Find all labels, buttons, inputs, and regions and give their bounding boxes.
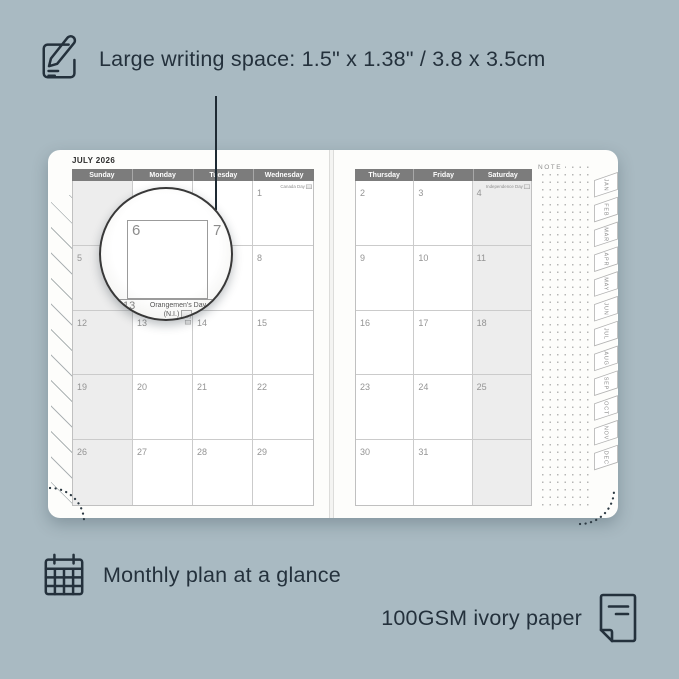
calendar-cell-14: 14: [193, 311, 253, 376]
month-tab-label-sep: SEP: [603, 377, 609, 390]
date-number: 2: [360, 188, 365, 198]
calendar-cell-24: 24: [414, 375, 472, 440]
calendar-cell-21: 21: [193, 375, 253, 440]
date-number: 4: [477, 188, 482, 198]
date-number: 28: [197, 447, 207, 457]
date-number: 23: [360, 382, 370, 392]
calendar-cell-2: 2: [356, 181, 414, 246]
date-number: 31: [418, 447, 428, 457]
month-tab-label-aug: AUG: [603, 351, 609, 365]
calendar-cell-17: 17: [414, 311, 472, 376]
calendar-cell-4: 4Independence Day: [473, 181, 531, 246]
feature-callout-paper: 100GSM ivory paper: [381, 592, 639, 644]
note-label: NOTE: [538, 164, 565, 171]
calendar-cell-3: 3: [414, 181, 472, 246]
month-tab-label-apr: APR: [603, 253, 609, 267]
calendar-cell-12: 12: [73, 311, 133, 376]
magnified-holiday-label: Orangemen's Day (N.I.): [138, 301, 218, 319]
magnified-date-13: 13: [123, 300, 135, 312]
calendar-cell-25: 25: [473, 375, 531, 440]
month-tab-label-mar: MAR: [603, 227, 609, 242]
corner-stitch-left: [44, 486, 88, 530]
right-page-day-headers: ThursdayFridaySaturday: [355, 169, 532, 181]
date-number: 17: [418, 318, 428, 328]
callout-line: [215, 96, 217, 210]
corner-stitch-right: [576, 486, 620, 530]
page-gutter: [328, 150, 335, 518]
holiday-label: Independence Day: [479, 184, 530, 190]
paper-sheet-icon: [597, 592, 639, 644]
date-number: 5: [77, 253, 82, 263]
holiday-label: Canada Day: [261, 184, 312, 190]
date-number: 14: [197, 318, 207, 328]
monthly-plan-label: Monthly plan at a glance: [103, 563, 341, 588]
note-column: NOTE: [537, 164, 594, 511]
cut-tab-hatch-edge: [51, 195, 72, 507]
date-number: 22: [257, 382, 267, 392]
date-number: 1: [257, 188, 262, 198]
date-number: 11: [477, 253, 486, 263]
calendar-cell-16: 16: [356, 311, 414, 376]
calendar-cell-11: 11: [473, 246, 531, 311]
day-header-monday: Monday: [133, 169, 194, 181]
day-header-friday: Friday: [414, 169, 473, 181]
writing-space-label: Large writing space: 1.5" x 1.38" / 3.8 …: [99, 47, 546, 72]
paper-label: 100GSM ivory paper: [381, 606, 582, 631]
month-tab-label-feb: FEB: [603, 203, 609, 216]
calendar-cell-9: 9: [356, 246, 414, 311]
flag-icon: [185, 320, 191, 324]
date-number: 10: [418, 253, 428, 263]
calendar-cell-22: 22: [253, 375, 313, 440]
calendar-cell-8: 8: [253, 246, 313, 311]
month-tab-label-oct: OCT: [603, 401, 609, 415]
month-tab-label-jul: JUL: [603, 328, 609, 340]
right-page-calendar-grid: 234Independence Day910111617182324253031: [355, 181, 532, 506]
month-tab-label-may: MAY: [603, 277, 609, 291]
calendar-cell-empty: [473, 440, 531, 505]
date-number: 27: [137, 447, 147, 457]
date-number: 30: [360, 447, 370, 457]
left-page-day-headers: SundayMondayTuesdayWednesday: [72, 169, 314, 181]
calendar-cell-18: 18: [473, 311, 531, 376]
calendar-cell-1: 1Canada Day: [253, 181, 313, 246]
date-number: 21: [197, 382, 207, 392]
calendar-cell-15: 15: [253, 311, 313, 376]
date-number: 9: [360, 253, 365, 263]
feature-callout-writing-space: Large writing space: 1.5" x 1.38" / 3.8 …: [38, 34, 546, 84]
date-number: 3: [418, 188, 423, 198]
feature-callout-monthly-plan: Monthly plan at a glance: [40, 552, 341, 598]
day-header-sunday: Sunday: [72, 169, 133, 181]
date-number: 15: [257, 318, 267, 328]
date-number: 26: [77, 447, 87, 457]
calendar-cell-30: 30: [356, 440, 414, 505]
month-tab-label-jun: JUN: [603, 302, 609, 315]
calendar-cell-23: 23: [356, 375, 414, 440]
product-feature-image: Large writing space: 1.5" x 1.38" / 3.8 …: [0, 0, 679, 679]
flag-icon: [181, 310, 192, 318]
pencil-note-icon: [38, 34, 84, 84]
day-header-wednesday: Wednesday: [254, 169, 314, 181]
month-tabs: JANFEBMARAPRMAYJUNJULAUGSEPOCTNOVDEC: [594, 172, 618, 472]
magnified-date-7: 7: [213, 222, 221, 239]
flag-icon: [524, 184, 530, 188]
day-header-thursday: Thursday: [355, 169, 414, 181]
date-number: 29: [257, 447, 267, 457]
calendar-cell-20: 20: [133, 375, 193, 440]
magnified-date-6: 6: [132, 222, 140, 239]
day-header-saturday: Saturday: [474, 169, 532, 181]
month-tab-label-dec: DEC: [603, 451, 609, 465]
date-number: 19: [77, 382, 87, 392]
flag-icon: [306, 184, 312, 188]
calendar-cell-29: 29: [253, 440, 313, 505]
calendar-cell-31: 31: [414, 440, 472, 505]
date-number: 25: [477, 382, 487, 392]
day-header-tuesday: Tuesday: [194, 169, 255, 181]
month-tab-label-nov: NOV: [603, 426, 609, 440]
date-number: 24: [418, 382, 428, 392]
calendar-cell-27: 27: [133, 440, 193, 505]
date-number: 12: [77, 318, 87, 328]
calendar-cell-28: 28: [193, 440, 253, 505]
date-number: 16: [360, 318, 370, 328]
date-number: 20: [137, 382, 147, 392]
date-number: 18: [477, 318, 487, 328]
calendar-cell-10: 10: [414, 246, 472, 311]
month-tab-label-jan: JAN: [603, 179, 609, 192]
calendar-cell-19: 19: [73, 375, 133, 440]
calendar-grid-icon: [40, 552, 88, 598]
month-title: JULY 2026: [72, 156, 115, 165]
magnifier-circle: 6 7 13 Orangemen's Day (N.I.): [99, 187, 233, 321]
magnified-row-line: [101, 299, 233, 300]
date-number: 8: [257, 253, 262, 263]
